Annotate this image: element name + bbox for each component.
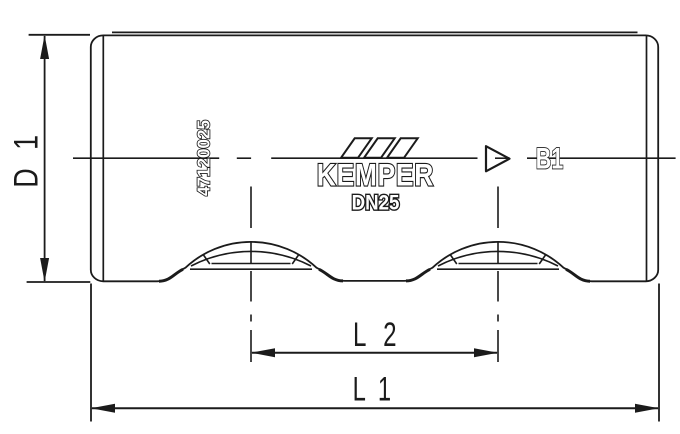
svg-text:L 1: L 1 (353, 370, 395, 408)
svg-text:47120025: 47120025 (193, 120, 214, 196)
svg-text:KEMPER: KEMPER (317, 159, 434, 194)
svg-text:D 1: D 1 (6, 129, 45, 187)
svg-text:B1: B1 (536, 141, 564, 175)
svg-text:DN25: DN25 (352, 192, 400, 215)
svg-text:L 2: L 2 (353, 316, 402, 354)
